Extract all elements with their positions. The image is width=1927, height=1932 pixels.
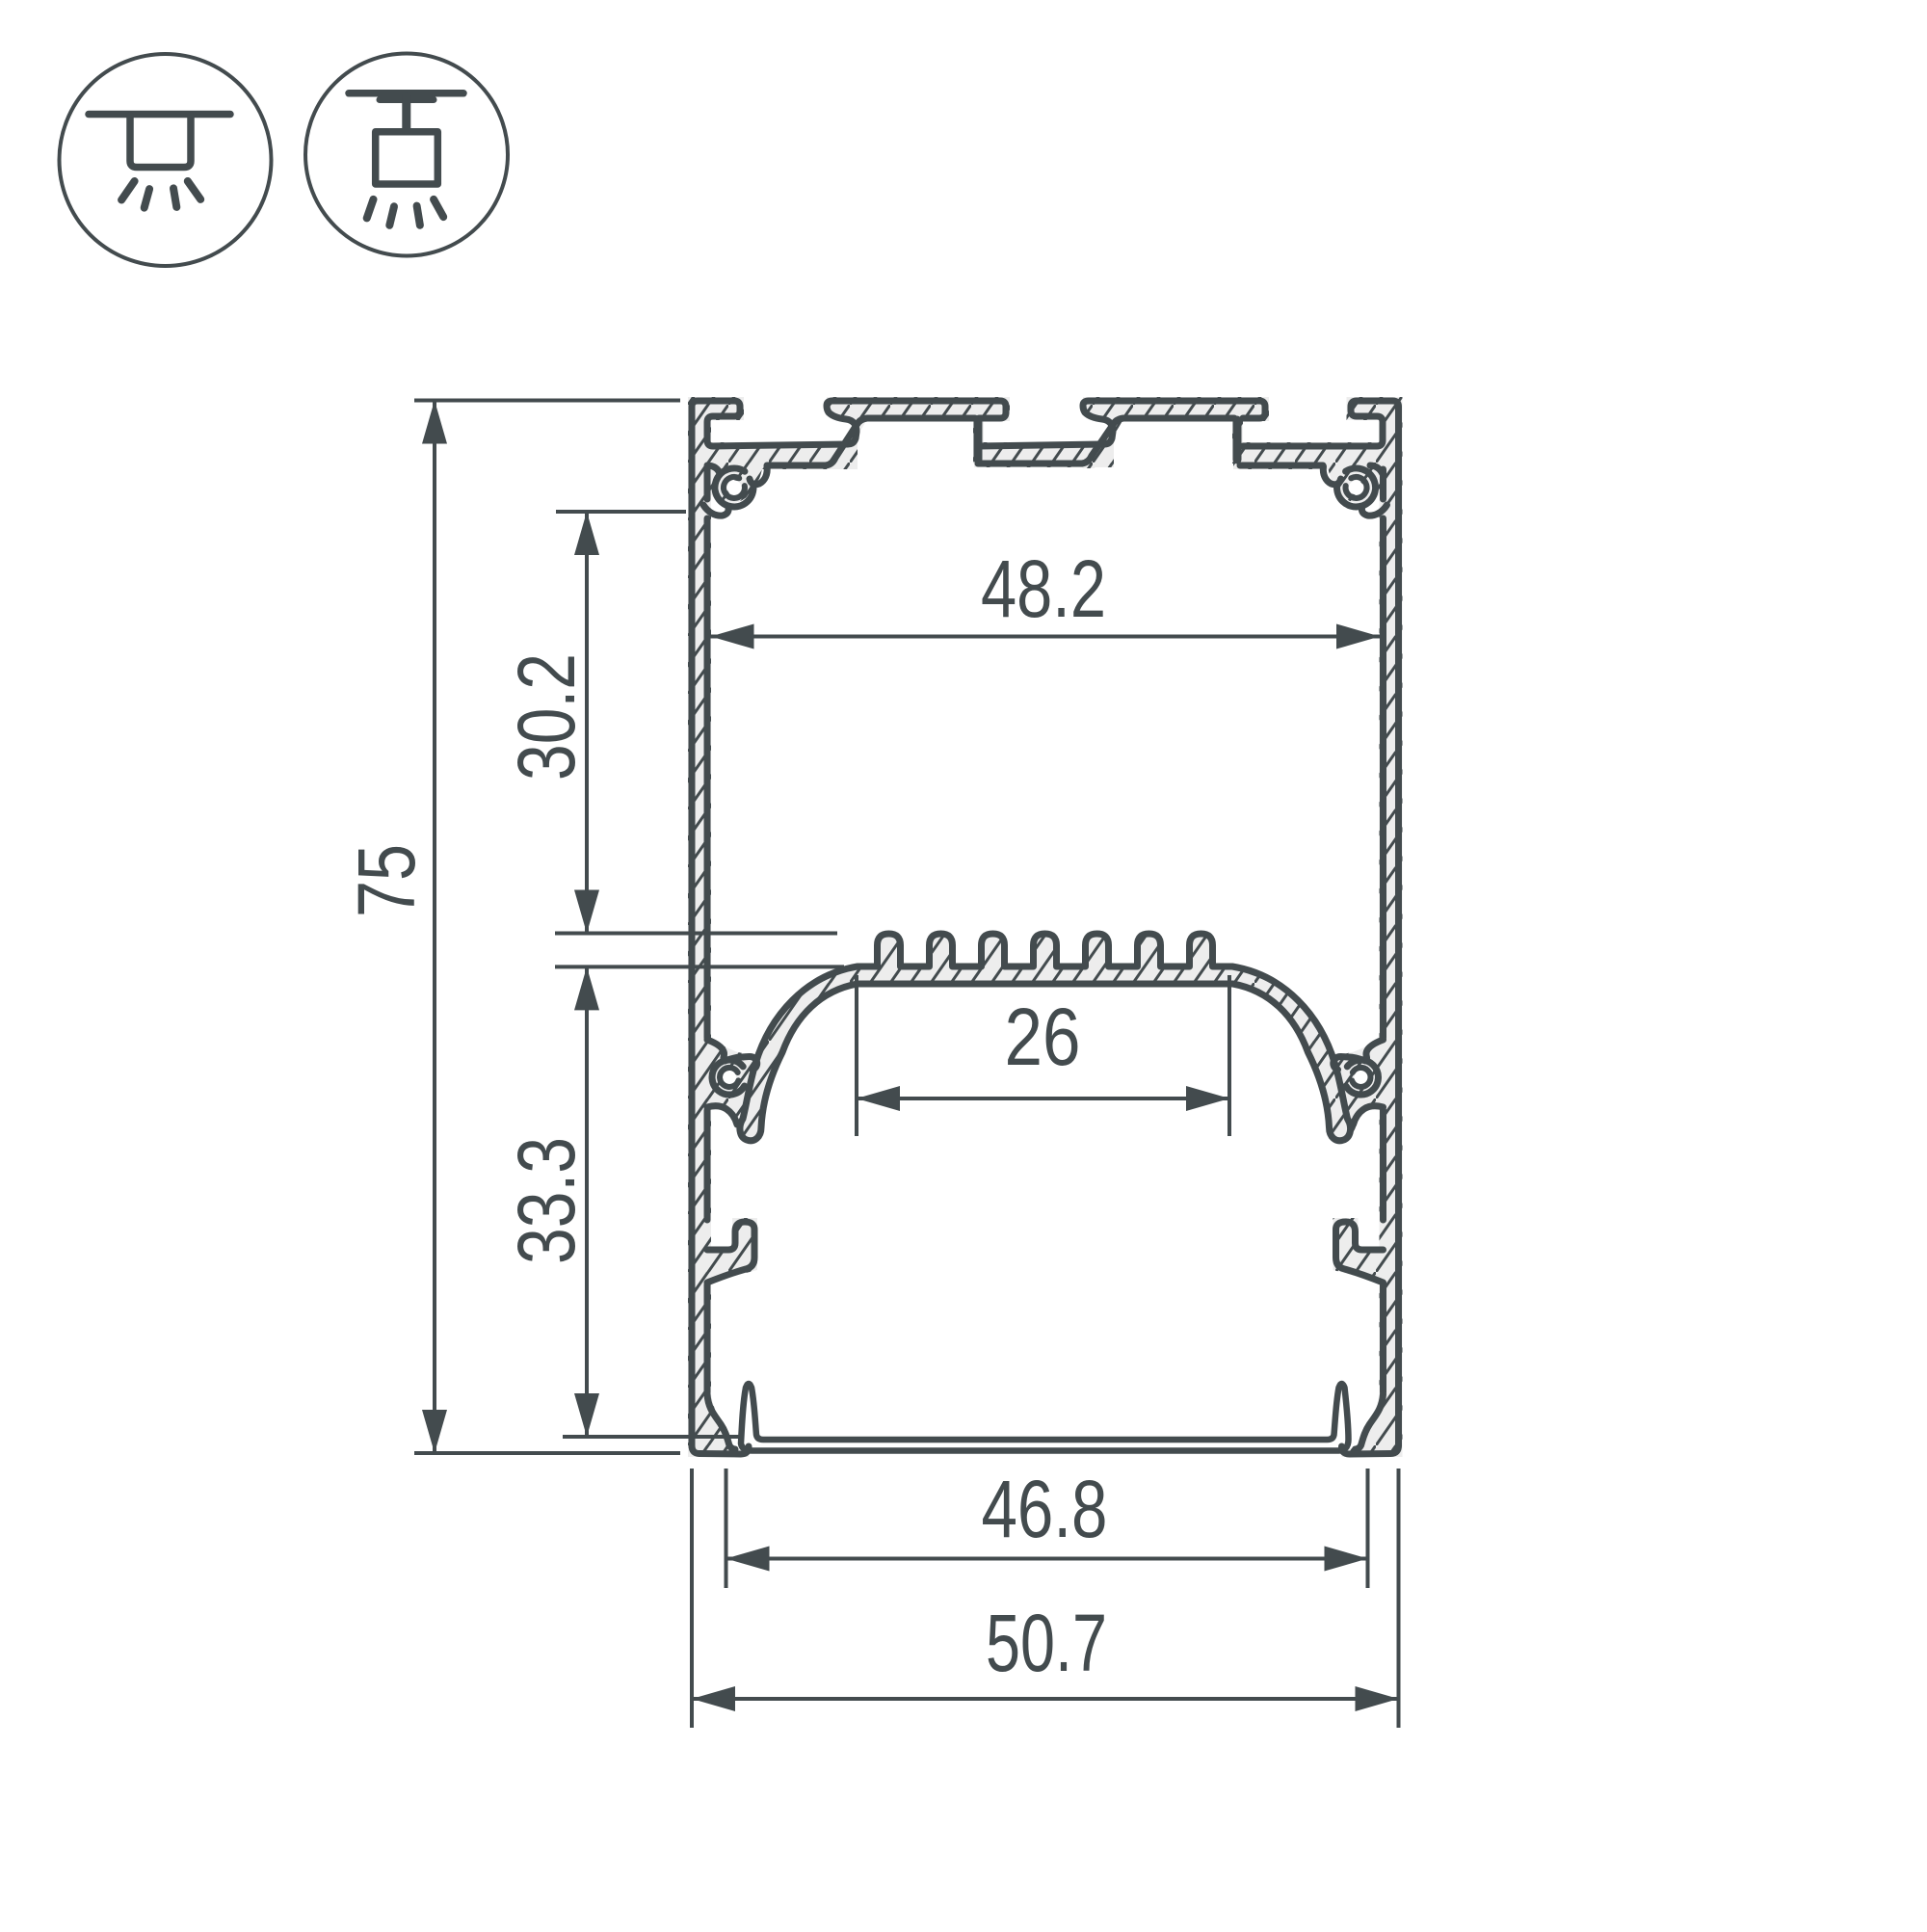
svg-text:50.7: 50.7 xyxy=(986,1598,1107,1688)
svg-text:48.2: 48.2 xyxy=(981,543,1106,634)
svg-text:75: 75 xyxy=(341,844,432,917)
svg-text:33.3: 33.3 xyxy=(501,1137,592,1264)
svg-text:46.8: 46.8 xyxy=(982,1464,1108,1554)
svg-text:26: 26 xyxy=(1005,992,1081,1082)
svg-text:30.2: 30.2 xyxy=(501,653,592,781)
